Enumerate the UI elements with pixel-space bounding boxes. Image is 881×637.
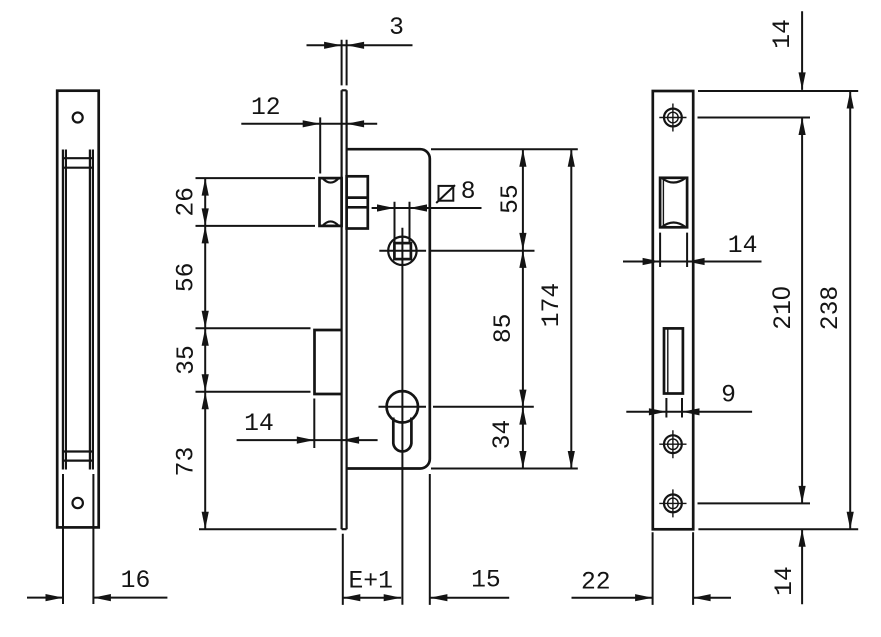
svg-text:16: 16 xyxy=(121,567,151,595)
svg-text:55: 55 xyxy=(497,184,525,214)
svg-text:35: 35 xyxy=(173,345,201,375)
svg-text:3: 3 xyxy=(389,14,404,42)
svg-text:9: 9 xyxy=(721,382,736,410)
svg-text:8: 8 xyxy=(461,178,476,206)
svg-text:85: 85 xyxy=(490,313,518,343)
svg-text:73: 73 xyxy=(173,447,201,477)
svg-text:14: 14 xyxy=(771,566,799,596)
svg-text:56: 56 xyxy=(173,262,201,292)
svg-text:22: 22 xyxy=(581,569,611,597)
svg-text:174: 174 xyxy=(538,283,566,327)
svg-text:34: 34 xyxy=(489,420,517,450)
svg-text:12: 12 xyxy=(251,94,281,122)
svg-text:238: 238 xyxy=(817,286,845,330)
svg-text:210: 210 xyxy=(769,286,798,329)
svg-text:14: 14 xyxy=(728,232,758,260)
svg-text:15: 15 xyxy=(471,567,501,595)
svg-text:26: 26 xyxy=(173,187,201,217)
svg-text:14: 14 xyxy=(769,19,797,49)
svg-text:14: 14 xyxy=(244,410,274,438)
svg-text:E+1: E+1 xyxy=(348,568,392,596)
